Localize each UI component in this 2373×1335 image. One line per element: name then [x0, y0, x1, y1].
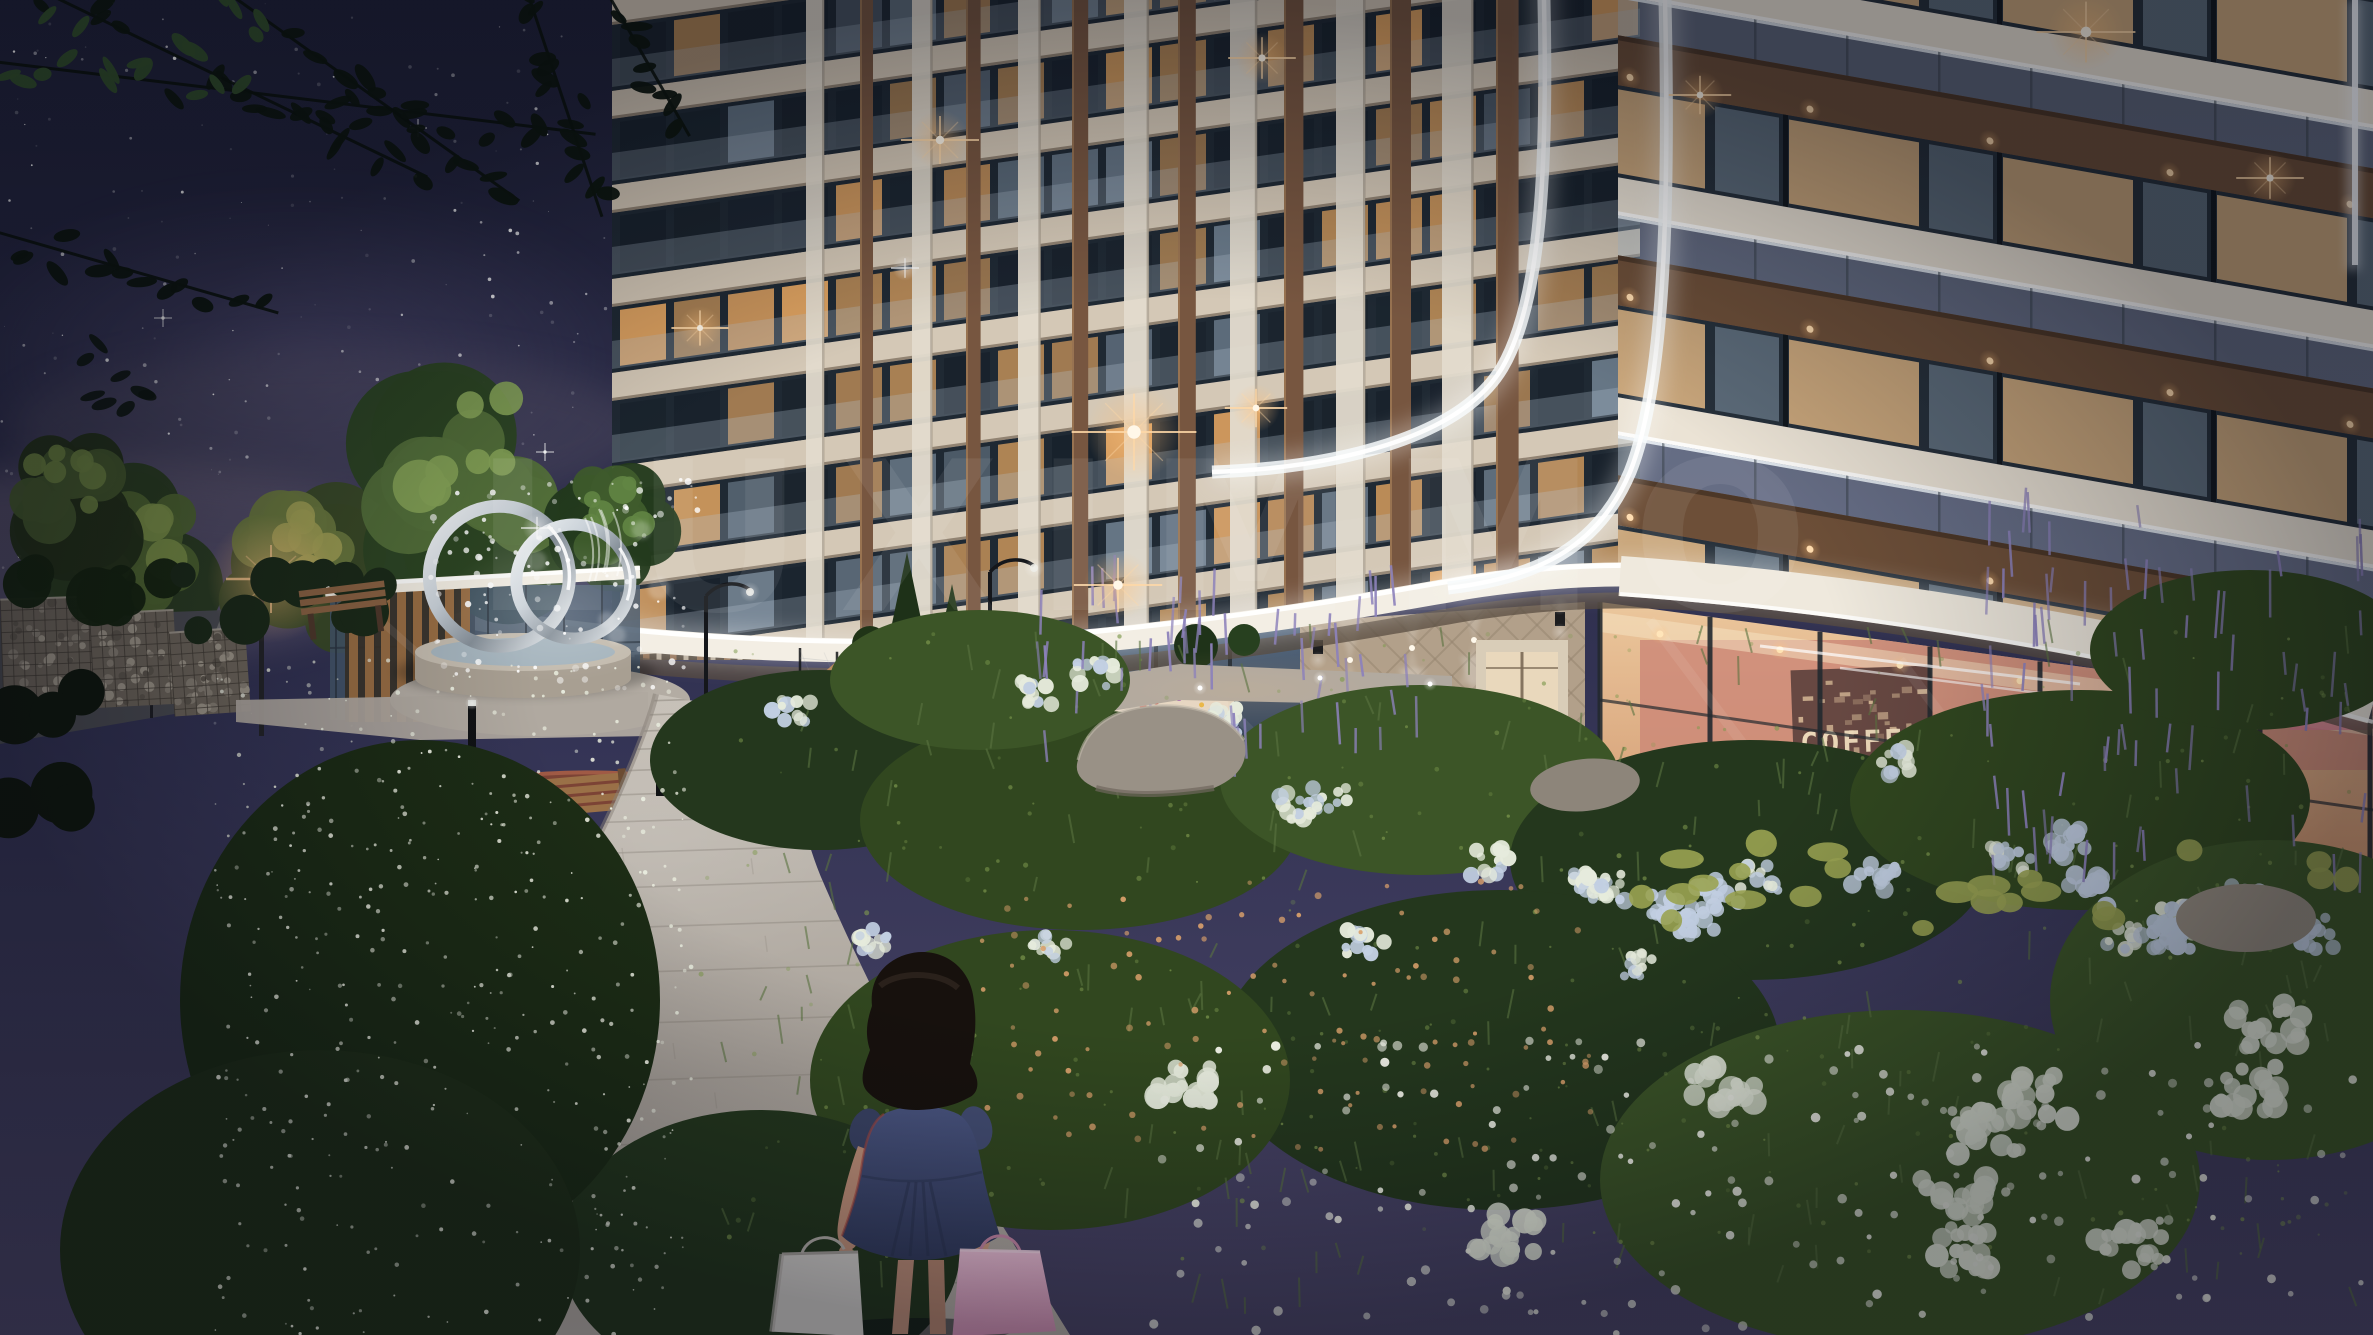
architectural-render: COFFEE LUXIMMO [0, 0, 2373, 1335]
vignette [0, 0, 2373, 1335]
render-canvas: COFFEE [0, 0, 2373, 1335]
